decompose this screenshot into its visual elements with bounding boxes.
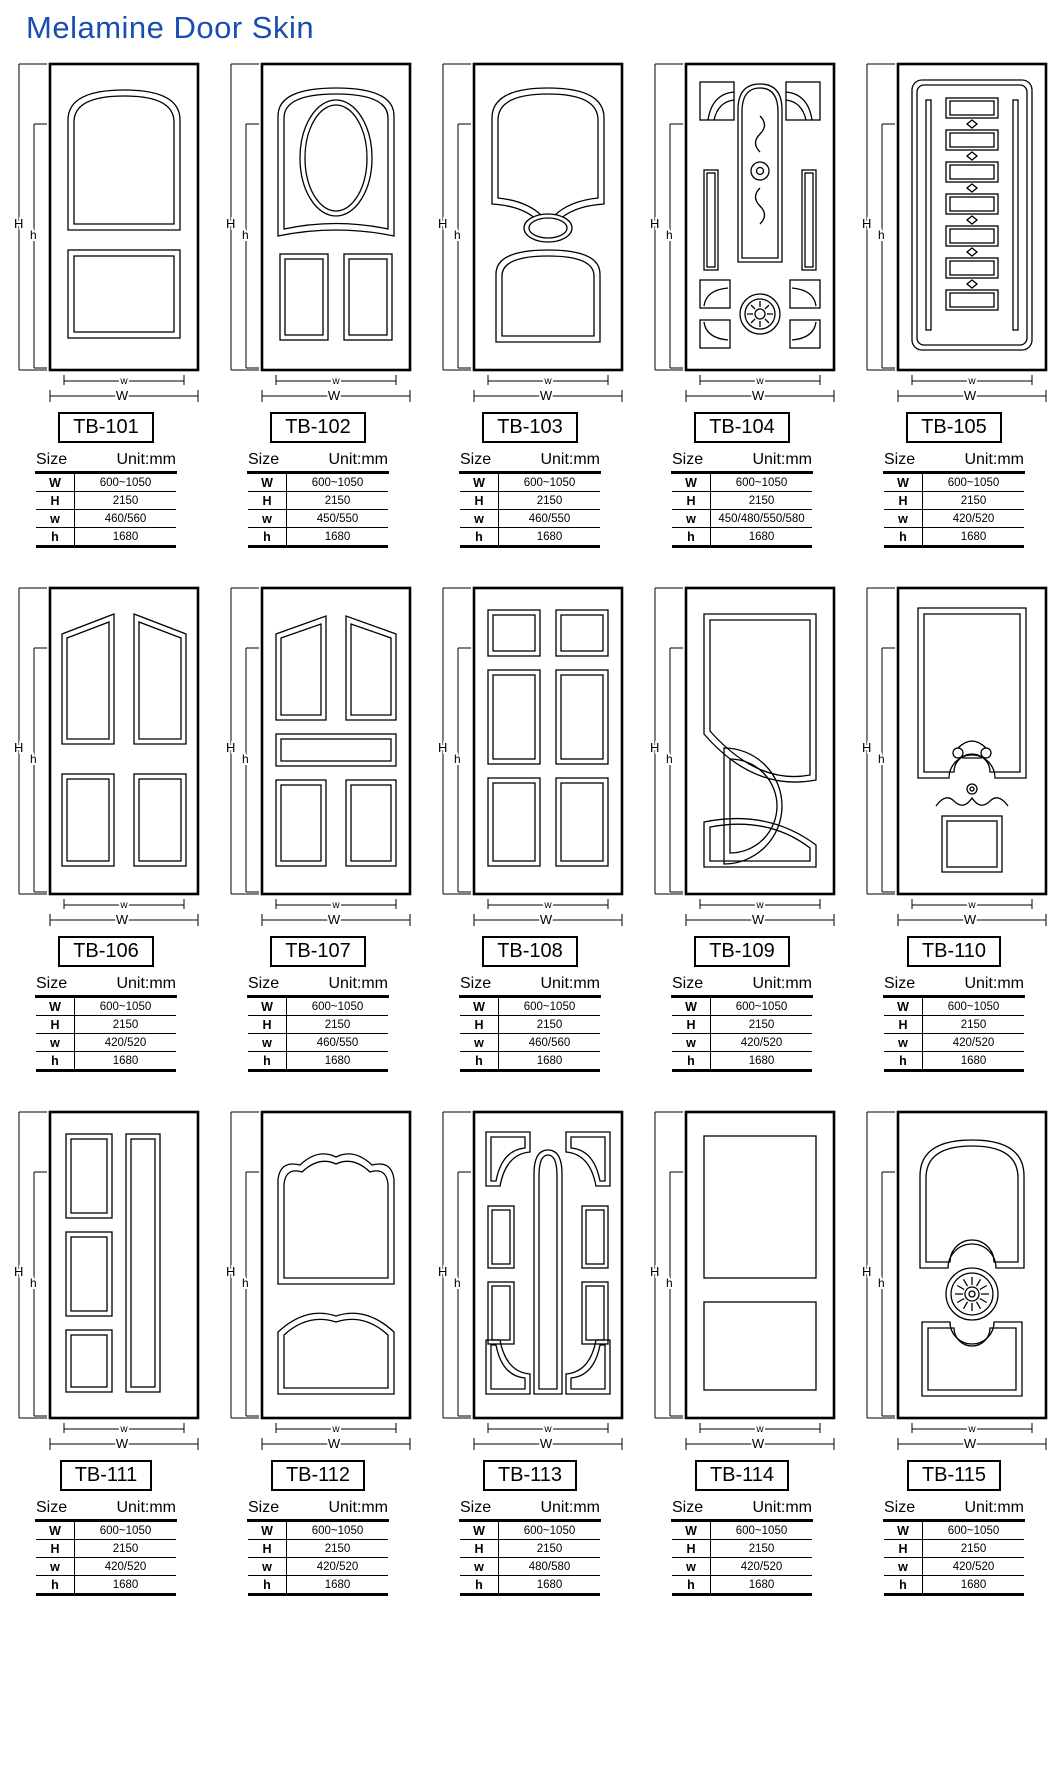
door-card-tb-104: TB-104 SizeUnit:mm W600~1050 H2150 w450/…: [636, 58, 848, 548]
table-row: W600~1050: [460, 1522, 600, 1540]
unit-label: Unit:mm: [540, 451, 600, 469]
table-row: W600~1050: [884, 474, 1024, 492]
door-drawing-tb-110: [854, 582, 1054, 930]
unit-label: Unit:mm: [116, 451, 176, 469]
unit-label: Unit:mm: [328, 1499, 388, 1517]
door-card-tb-106: TB-106 SizeUnit:mm W600~1050 H2150 w420/…: [0, 582, 212, 1072]
model-label: TB-111: [60, 1460, 153, 1491]
table-row: W600~1050: [460, 998, 600, 1016]
size-table: W600~1050 H2150 w460/550 h1680: [460, 474, 600, 548]
size-table: W600~1050 H2150 w420/520 h1680: [672, 1522, 812, 1596]
table-row: H2150: [36, 492, 176, 510]
door-card-tb-102: TB-102 SizeUnit:mm W600~1050 H2150 w450/…: [212, 58, 424, 548]
door-drawing-tb-105: [854, 58, 1054, 406]
size-label: Size: [672, 451, 703, 469]
unit-label: Unit:mm: [752, 975, 812, 993]
table-row: H2150: [884, 1016, 1024, 1034]
table-row: H2150: [672, 1016, 812, 1034]
door-drawing-tb-111: [6, 1106, 206, 1454]
table-row: H2150: [672, 492, 812, 510]
model-label: TB-112: [271, 1460, 365, 1491]
table-row: H2150: [884, 1540, 1024, 1558]
size-table: W600~1050 H2150 w420/520 h1680: [884, 998, 1024, 1072]
table-row: h1680: [672, 1576, 812, 1595]
size-table: W600~1050 H2150 w460/560 h1680: [460, 998, 600, 1072]
table-row: h1680: [672, 528, 812, 547]
unit-label: Unit:mm: [116, 975, 176, 993]
table-row: h1680: [884, 1576, 1024, 1595]
size-label: Size: [884, 1499, 915, 1517]
table-row: w420/520: [36, 1034, 176, 1052]
size-table: W600~1050 H2150 w420/520 h1680: [36, 998, 176, 1072]
door-drawing-tb-104: [642, 58, 842, 406]
model-label: TB-107: [270, 936, 366, 967]
size-table: W600~1050 H2150 w460/550 h1680: [248, 998, 388, 1072]
table-row: w460/550: [460, 510, 600, 528]
size-table: W600~1050 H2150 w420/520 h1680: [884, 474, 1024, 548]
door-drawing-tb-108: [430, 582, 630, 930]
size-label: Size: [884, 975, 915, 993]
door-card-tb-105: TB-105 SizeUnit:mm W600~1050 H2150 w420/…: [848, 58, 1060, 548]
table-row: W600~1050: [460, 474, 600, 492]
model-label: TB-115: [907, 1460, 1001, 1491]
table-row: H2150: [460, 1016, 600, 1034]
size-label: Size: [248, 1499, 279, 1517]
table-row: h1680: [884, 528, 1024, 547]
unit-label: Unit:mm: [964, 975, 1024, 993]
table-row: w420/520: [36, 1558, 176, 1576]
table-row: W600~1050: [248, 998, 388, 1016]
unit-label: Unit:mm: [116, 1499, 176, 1517]
door-card-tb-108: TB-108 SizeUnit:mm W600~1050 H2150 w460/…: [424, 582, 636, 1072]
unit-label: Unit:mm: [752, 1499, 812, 1517]
table-row: h1680: [248, 528, 388, 547]
door-card-tb-110: TB-110 SizeUnit:mm W600~1050 H2150 w420/…: [848, 582, 1060, 1072]
door-card-tb-113: TB-113 SizeUnit:mm W600~1050 H2150 w480/…: [424, 1106, 636, 1596]
size-table: W600~1050 H2150 w420/520 h1680: [248, 1522, 388, 1596]
door-card-tb-107: TB-107 SizeUnit:mm W600~1050 H2150 w460/…: [212, 582, 424, 1072]
table-row: W600~1050: [248, 1522, 388, 1540]
size-label: Size: [36, 975, 67, 993]
table-row: h1680: [884, 1052, 1024, 1071]
table-row: W600~1050: [884, 1522, 1024, 1540]
table-row: w420/520: [672, 1034, 812, 1052]
unit-label: Unit:mm: [540, 1499, 600, 1517]
model-label: TB-110: [907, 936, 1001, 967]
size-table: W600~1050 H2150 w460/560 h1680: [36, 474, 176, 548]
table-row: H2150: [248, 1016, 388, 1034]
table-row: W600~1050: [248, 474, 388, 492]
table-row: w420/520: [884, 510, 1024, 528]
table-row: w420/520: [248, 1558, 388, 1576]
model-label: TB-113: [483, 1460, 577, 1491]
door-drawing-tb-113: [430, 1106, 630, 1454]
door-card-tb-112: TB-112 SizeUnit:mm W600~1050 H2150 w420/…: [212, 1106, 424, 1596]
unit-label: Unit:mm: [328, 975, 388, 993]
model-label: TB-103: [482, 412, 578, 443]
table-row: h1680: [36, 1052, 176, 1071]
table-row: w460/560: [460, 1034, 600, 1052]
table-row: h1680: [36, 528, 176, 547]
door-card-tb-115: TB-115 SizeUnit:mm W600~1050 H2150 w420/…: [848, 1106, 1060, 1596]
model-label: TB-109: [694, 936, 790, 967]
size-table: W600~1050 H2150 w420/520 h1680: [36, 1522, 176, 1596]
table-row: W600~1050: [672, 998, 812, 1016]
table-row: H2150: [672, 1540, 812, 1558]
table-row: h1680: [248, 1576, 388, 1595]
table-row: W600~1050: [672, 474, 812, 492]
door-drawing-tb-102: [218, 58, 418, 406]
table-row: H2150: [460, 492, 600, 510]
size-label: Size: [248, 975, 279, 993]
table-row: h1680: [248, 1052, 388, 1071]
table-row: w420/520: [672, 1558, 812, 1576]
size-label: Size: [36, 451, 67, 469]
door-drawing-tb-107: [218, 582, 418, 930]
page-title: Melamine Door Skin: [26, 10, 1060, 46]
door-card-tb-111: TB-111 SizeUnit:mm W600~1050 H2150 w420/…: [0, 1106, 212, 1596]
model-label: TB-106: [58, 936, 154, 967]
door-drawing-tb-106: [6, 582, 206, 930]
door-drawing-tb-115: [854, 1106, 1054, 1454]
size-label: Size: [460, 1499, 491, 1517]
model-label: TB-105: [906, 412, 1002, 443]
size-label: Size: [36, 1499, 67, 1517]
table-row: h1680: [672, 1052, 812, 1071]
table-row: w450/550: [248, 510, 388, 528]
size-table: W600~1050 H2150 w480/580 h1680: [460, 1522, 600, 1596]
unit-label: Unit:mm: [328, 451, 388, 469]
table-row: H2150: [460, 1540, 600, 1558]
size-label: Size: [672, 975, 703, 993]
door-drawing-tb-109: [642, 582, 842, 930]
table-row: h1680: [460, 1576, 600, 1595]
model-label: TB-114: [695, 1460, 789, 1491]
size-table: W600~1050 H2150 w420/520 h1680: [884, 1522, 1024, 1596]
size-label: Size: [672, 1499, 703, 1517]
table-row: H2150: [884, 492, 1024, 510]
door-catalog-grid: TB-101 SizeUnit:mm W600~1050 H2150 w460/…: [0, 50, 1060, 1596]
table-row: H2150: [36, 1540, 176, 1558]
table-row: W600~1050: [36, 474, 176, 492]
table-row: h1680: [460, 1052, 600, 1071]
table-row: W600~1050: [36, 1522, 176, 1540]
table-row: W600~1050: [884, 998, 1024, 1016]
table-row: w460/560: [36, 510, 176, 528]
model-label: TB-104: [694, 412, 790, 443]
door-drawing-tb-101: [6, 58, 206, 406]
model-label: TB-108: [482, 936, 578, 967]
model-label: TB-102: [270, 412, 366, 443]
door-drawing-tb-112: [218, 1106, 418, 1454]
table-row: w420/520: [884, 1558, 1024, 1576]
door-card-tb-109: TB-109 SizeUnit:mm W600~1050 H2150 w420/…: [636, 582, 848, 1072]
table-row: w480/580: [460, 1558, 600, 1576]
size-label: Size: [460, 975, 491, 993]
door-card-tb-103: TB-103 SizeUnit:mm W600~1050 H2150 w460/…: [424, 58, 636, 548]
unit-label: Unit:mm: [752, 451, 812, 469]
size-label: Size: [460, 451, 491, 469]
unit-label: Unit:mm: [540, 975, 600, 993]
table-row: w450/480/550/580: [672, 510, 812, 528]
unit-label: Unit:mm: [964, 451, 1024, 469]
table-row: W600~1050: [36, 998, 176, 1016]
table-row: H2150: [36, 1016, 176, 1034]
door-drawing-tb-103: [430, 58, 630, 406]
table-row: h1680: [36, 1576, 176, 1595]
door-card-tb-114: TB-114 SizeUnit:mm W600~1050 H2150 w420/…: [636, 1106, 848, 1596]
table-row: w460/550: [248, 1034, 388, 1052]
table-row: W600~1050: [672, 1522, 812, 1540]
unit-label: Unit:mm: [964, 1499, 1024, 1517]
table-row: H2150: [248, 1540, 388, 1558]
size-table: W600~1050 H2150 w420/520 h1680: [672, 998, 812, 1072]
door-drawing-tb-114: [642, 1106, 842, 1454]
door-card-tb-101: TB-101 SizeUnit:mm W600~1050 H2150 w460/…: [0, 58, 212, 548]
table-row: h1680: [460, 528, 600, 547]
table-row: w420/520: [884, 1034, 1024, 1052]
table-row: H2150: [248, 492, 388, 510]
model-label: TB-101: [58, 412, 154, 443]
size-label: Size: [248, 451, 279, 469]
size-table: W600~1050 H2150 w450/550 h1680: [248, 474, 388, 548]
size-table: W600~1050 H2150 w450/480/550/580 h1680: [672, 474, 812, 548]
size-label: Size: [884, 451, 915, 469]
